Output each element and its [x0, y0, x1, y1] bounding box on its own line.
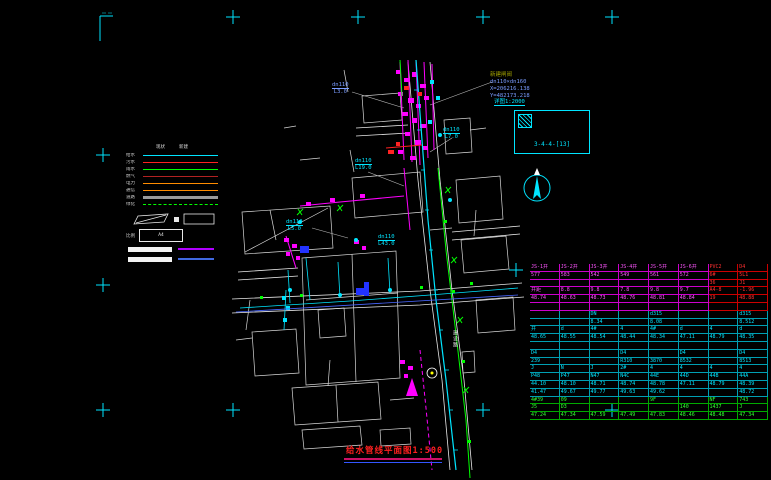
table-cell — [679, 389, 709, 397]
table-cell: 4 — [679, 365, 709, 373]
table-cell: 47.11 — [679, 334, 709, 342]
table-row: P48P47N47N4C44E44D44B44A — [530, 373, 768, 381]
legend-symbol-shapes — [126, 211, 218, 227]
table-cell: 4 — [709, 365, 739, 373]
table-cell: 41.47 — [530, 389, 560, 397]
table-cell: 9.8 — [590, 287, 620, 295]
table-cell: 47.34 — [738, 412, 768, 420]
table-cell: 49.67 — [560, 389, 590, 397]
table-cell: 4# — [590, 326, 620, 334]
table-row: 8.348.088.512 — [530, 319, 768, 327]
legend-line-sample — [143, 196, 218, 199]
table-cell — [619, 397, 649, 405]
table-cell — [619, 404, 649, 412]
table-cell: 44A — [738, 373, 768, 381]
table-cell: 09 — [560, 397, 590, 405]
table-cell — [590, 397, 620, 405]
table-cell: 9.7 — [679, 287, 709, 295]
annotation-pipe-size: dn110×dn160 — [490, 79, 530, 86]
table-cell: 48.79 — [709, 334, 739, 342]
table-cell: DN — [590, 311, 620, 319]
table-cell — [590, 280, 620, 288]
table-cell — [560, 350, 590, 358]
table-cell: J — [738, 404, 768, 412]
table-cell: 6# — [709, 272, 739, 280]
table-row: 47.2447.3447.5947.4947.8348.4648.4847.34 — [530, 412, 768, 420]
road-lines — [232, 62, 524, 470]
cad-drawing-canvas: 新建闸阀 dn110×dn160 X=206216.138 Y=482173.2… — [0, 0, 771, 480]
table-cell: J5 — [530, 404, 560, 412]
detail-callout-caption: 详图1:2000 — [494, 97, 525, 106]
table-cell: 49.77 — [590, 389, 620, 397]
table-cell: JS-5井 — [649, 264, 679, 272]
table-cell: 48.34 — [649, 334, 679, 342]
table-cell — [560, 311, 590, 319]
table-cell: 8513 — [738, 358, 768, 366]
table-cell: 5L1 — [738, 272, 768, 280]
legend-header-new: 新建 — [179, 144, 188, 150]
table-cell: 4 — [709, 326, 739, 334]
sheet-title-scale: 1:500 — [413, 446, 444, 456]
table-cell: 44B — [709, 373, 739, 381]
table-cell: JS-1井 — [530, 264, 560, 272]
table-row: D4D4D4D4 — [530, 350, 768, 358]
table-cell: 48.55 — [560, 334, 590, 342]
pipe-dimension-label: dn110L19.0 — [355, 158, 372, 171]
table-row: 41.4749.6749.7749.6349.6248.72 — [530, 389, 768, 397]
table-cell — [619, 311, 649, 319]
table-cell: JS-6井 — [679, 264, 709, 272]
table-cell: D4 — [619, 350, 649, 358]
table-cell — [679, 303, 709, 311]
table-cell — [709, 350, 739, 358]
coordinate-annotation: 新建闸阀 dn110×dn160 X=206216.138 Y=482173.2… — [490, 72, 530, 100]
table-cell: 48.39 — [738, 381, 768, 389]
table-cell: 2# — [619, 365, 649, 373]
table-cell — [590, 303, 620, 311]
table-cell — [530, 280, 560, 288]
table-cell — [709, 358, 739, 366]
table-cell: JS-2井 — [560, 264, 590, 272]
table-cell — [530, 303, 560, 311]
table-cell: 4#39 — [530, 397, 560, 405]
table-row — [530, 303, 768, 311]
table-cell — [530, 319, 560, 327]
table-cell: 48.79 — [709, 381, 739, 389]
table-cell: 47.34 — [560, 412, 590, 420]
legend-line-sample — [143, 176, 218, 177]
blue-utility-line — [236, 246, 518, 312]
table-cell: 48.10 — [560, 381, 590, 389]
table-cell: 19 — [709, 295, 739, 303]
table-cell — [738, 342, 768, 350]
table-cell: P47 — [560, 373, 590, 381]
legend-line-sample — [143, 204, 218, 205]
table-cell: 井距 — [530, 287, 560, 295]
table-cell — [560, 280, 590, 288]
table-cell: 48.48 — [709, 412, 739, 420]
sheet-title: 给水管线平面图1:500 — [346, 444, 443, 456]
table-cell: P48 — [530, 373, 560, 381]
table-cell: N — [560, 365, 590, 373]
survey-point-circle — [427, 368, 437, 378]
legend-header: 现状 新建 — [126, 144, 218, 150]
table-cell — [619, 280, 649, 288]
legend-item-label: 道路 — [126, 195, 143, 200]
legend-line-sample — [143, 155, 218, 156]
table-cell: 48.84 — [679, 295, 709, 303]
corner-mark — [100, 13, 113, 41]
legend-frame-label: 比例 — [126, 233, 135, 239]
table-row: 4#39099FNF743 — [530, 397, 768, 405]
table-cell — [709, 311, 739, 319]
legend-purple-line — [178, 248, 214, 250]
table-cell: 8532 — [679, 358, 709, 366]
table-cell: 8.08 — [649, 319, 679, 327]
table-cell: 44.10 — [530, 381, 560, 389]
table-cell: 239 — [530, 358, 560, 366]
table-cell: 583 — [560, 272, 590, 280]
table-cell — [619, 319, 649, 327]
table-cell: D3 — [560, 404, 590, 412]
table-cell: 49.62 — [649, 389, 679, 397]
table-cell — [560, 303, 590, 311]
table-row: 48.7448.6348.7348.7648.8148.841948.88 — [530, 295, 768, 303]
road-name-label: 建设路 — [452, 330, 459, 348]
table-cell — [679, 280, 709, 288]
table-row — [530, 342, 768, 350]
table-cell — [679, 342, 709, 350]
legend-item-label: 绿化 — [126, 202, 143, 207]
legend-bar-2 — [128, 257, 172, 262]
legend-item-label: 电力 — [126, 181, 143, 186]
table-cell: 48.74 — [530, 295, 560, 303]
legend-item-label: 污水 — [126, 160, 143, 165]
table-cell: d — [560, 326, 590, 334]
table-cell: 48.78 — [649, 381, 679, 389]
table-cell: JS-4井 — [619, 264, 649, 272]
table-cell: D4 — [738, 264, 768, 272]
table-cell — [530, 311, 560, 319]
table-cell: JS-3井 — [590, 264, 620, 272]
table-cell — [649, 350, 679, 358]
pipe-dimension-label: dn110L43.0 — [378, 234, 395, 247]
well-schedule-table: JS-1井JS-2井JS-3井JS-4井JS-5井JS-6井PVC2D45775… — [530, 264, 768, 420]
legend-frame-row: 比例 A4 — [126, 229, 218, 242]
legend-item-label: 雨水 — [126, 167, 143, 172]
table-cell: 48.46 — [679, 412, 709, 420]
table-cell: 48.74 — [619, 381, 649, 389]
table-cell: 井 — [530, 326, 560, 334]
annotation-valve-label: 新建闸阀 — [490, 72, 530, 79]
legend-frame-box: A4 — [139, 229, 183, 242]
table-row: JNJ2#4444 — [530, 365, 768, 373]
table-cell: 48.44 — [619, 334, 649, 342]
table-cell: N4C — [619, 373, 649, 381]
table-cell — [709, 303, 739, 311]
legend-line-sample — [143, 190, 218, 191]
legend-header-existing: 现状 — [156, 144, 165, 150]
table-cell: 44D — [679, 373, 709, 381]
legend: 现状 新建 给水污水雨水燃气电力通信道路绿化 比例 A4 — [126, 144, 218, 265]
legend-bar-1 — [128, 247, 172, 252]
table-cell: 48.76 — [619, 295, 649, 303]
pipe-dimension-label: dn110L5.0 — [286, 219, 303, 232]
table-cell: 4 — [649, 365, 679, 373]
table-row: DNd315d315 — [530, 311, 768, 319]
table-cell: 8.512 — [738, 319, 768, 327]
legend-item: 燃气 — [126, 173, 218, 180]
table-cell: 9F — [649, 397, 679, 405]
legend-bars — [126, 245, 218, 265]
legend-item: 电力 — [126, 180, 218, 187]
table-cell — [679, 319, 709, 327]
table-cell: 140 — [679, 404, 709, 412]
table-cell — [649, 280, 679, 288]
table-cell: D4 — [530, 350, 560, 358]
title-underline-primary — [344, 458, 442, 460]
table-cell: 47.24 — [530, 412, 560, 420]
sheet-title-text: 给水管线平面图 — [346, 446, 413, 456]
table-cell: 48.88 — [738, 295, 768, 303]
legend-line-sample — [143, 169, 218, 170]
table-cell — [590, 358, 620, 366]
table-row: JS-1井JS-2井JS-3井JS-4井JS-5井JS-6井PVC2D4 — [530, 264, 768, 272]
table-cell: d315 — [649, 311, 679, 319]
title-underline-secondary — [344, 462, 442, 463]
table-cell: 7.8 — [619, 287, 649, 295]
table-cell — [560, 319, 590, 327]
north-arrow — [524, 168, 550, 201]
table-cell — [590, 350, 620, 358]
legend-item: 绿化 — [126, 201, 218, 208]
table-cell: 4# — [649, 326, 679, 334]
legend-item: 通信 — [126, 187, 218, 194]
table-cell: 4 — [619, 326, 649, 334]
table-cell: J — [530, 365, 560, 373]
table-cell: N47 — [590, 373, 620, 381]
table-cell: 48.65 — [530, 334, 560, 342]
table-cell — [530, 342, 560, 350]
table-row: 5775835425495615726#5L1 — [530, 272, 768, 280]
table-cell — [590, 342, 620, 350]
table-cell: D4 — [738, 350, 768, 358]
table-cell — [709, 342, 739, 350]
table-cell: 47.49 — [619, 412, 649, 420]
table-cell — [709, 319, 739, 327]
table-cell — [619, 303, 649, 311]
annotation-x-coord: X=206216.138 — [490, 86, 530, 93]
legend-rows: 给水污水雨水燃气电力通信道路绿化 — [126, 152, 218, 208]
legend-line-sample — [143, 162, 218, 163]
table-cell: 561 — [649, 272, 679, 280]
table-cell — [649, 404, 679, 412]
table-cell: 48.54 — [590, 334, 620, 342]
table-cell: 577 — [530, 272, 560, 280]
table-cell: 44E — [649, 373, 679, 381]
table-row: J5D31401437J — [530, 404, 768, 412]
table-cell: -1.96 — [738, 287, 768, 295]
detail-reference-label: 3-4-4-[13] — [515, 141, 589, 148]
legend-line-sample — [143, 183, 218, 184]
table-cell — [590, 404, 620, 412]
table-cell: 36 — [709, 280, 739, 288]
legend-item-label: 给水 — [126, 153, 143, 158]
table-cell: 49.63 — [619, 389, 649, 397]
table-cell: 48.72 — [738, 389, 768, 397]
table-cell: 4 — [738, 365, 768, 373]
table-cell: 47.11 — [679, 381, 709, 389]
table-cell — [679, 397, 709, 405]
table-row: 井d4#44#d4d — [530, 326, 768, 334]
table-cell — [709, 389, 739, 397]
table-cell — [679, 311, 709, 319]
table-cell: PVC2 — [709, 264, 739, 272]
table-cell: J1 — [738, 280, 768, 288]
table-row: 44.1048.1048.7148.7448.7847.1148.7948.39 — [530, 381, 768, 389]
pipe-dimension-label: dn110L7.0 — [443, 127, 460, 140]
legend-item: 雨水 — [126, 166, 218, 173]
table-row: 井距8.89.87.89.89.7A4-8-1.96 — [530, 287, 768, 295]
table-cell: D4 — [679, 350, 709, 358]
table-cell: 8.8 — [560, 287, 590, 295]
table-cell: 48.63 — [560, 295, 590, 303]
table-row: 48.6548.5548.5448.4448.3447.1148.7948.35 — [530, 334, 768, 342]
hatch-symbol — [518, 114, 532, 128]
table-cell — [560, 342, 590, 350]
table-cell: 48.81 — [649, 295, 679, 303]
table-cell — [560, 358, 590, 366]
table-cell — [649, 342, 679, 350]
table-cell — [738, 303, 768, 311]
table-cell: d — [738, 326, 768, 334]
table-cell: 8.34 — [590, 319, 620, 327]
table-cell: 48.35 — [738, 334, 768, 342]
table-cell: 47.83 — [649, 412, 679, 420]
table-cell: 542 — [590, 272, 620, 280]
legend-item-label: 燃气 — [126, 174, 143, 179]
table-cell — [649, 303, 679, 311]
table-cell: NF — [709, 397, 739, 405]
table-cell: 48.71 — [590, 381, 620, 389]
table-cell: d315 — [738, 311, 768, 319]
table-cell: d — [679, 326, 709, 334]
table-row: 239R310387085328513 — [530, 358, 768, 366]
table-cell: 743 — [738, 397, 768, 405]
pipe-dimension-label: dn110L3.0 — [332, 82, 349, 95]
legend-item: 给水 — [126, 152, 218, 159]
table-cell — [619, 342, 649, 350]
table-row: 36J1 — [530, 280, 768, 288]
table-cell: 9.8 — [649, 287, 679, 295]
legend-blue-line — [178, 258, 214, 260]
table-cell: R310 — [619, 358, 649, 366]
legend-symbols — [126, 211, 218, 227]
table-cell: 3870 — [649, 358, 679, 366]
table-cell: 572 — [679, 272, 709, 280]
table-cell: 549 — [619, 272, 649, 280]
legend-item-label: 通信 — [126, 188, 143, 193]
legend-item: 污水 — [126, 159, 218, 166]
table-cell: 47.59 — [590, 412, 620, 420]
table-cell: J — [590, 365, 620, 373]
table-cell: A4-8 — [709, 287, 739, 295]
legend-item: 道路 — [126, 194, 218, 201]
detail-callout-box: 3-4-4-[13] — [514, 110, 590, 154]
table-cell: 1437 — [709, 404, 739, 412]
table-cell: 48.73 — [590, 295, 620, 303]
